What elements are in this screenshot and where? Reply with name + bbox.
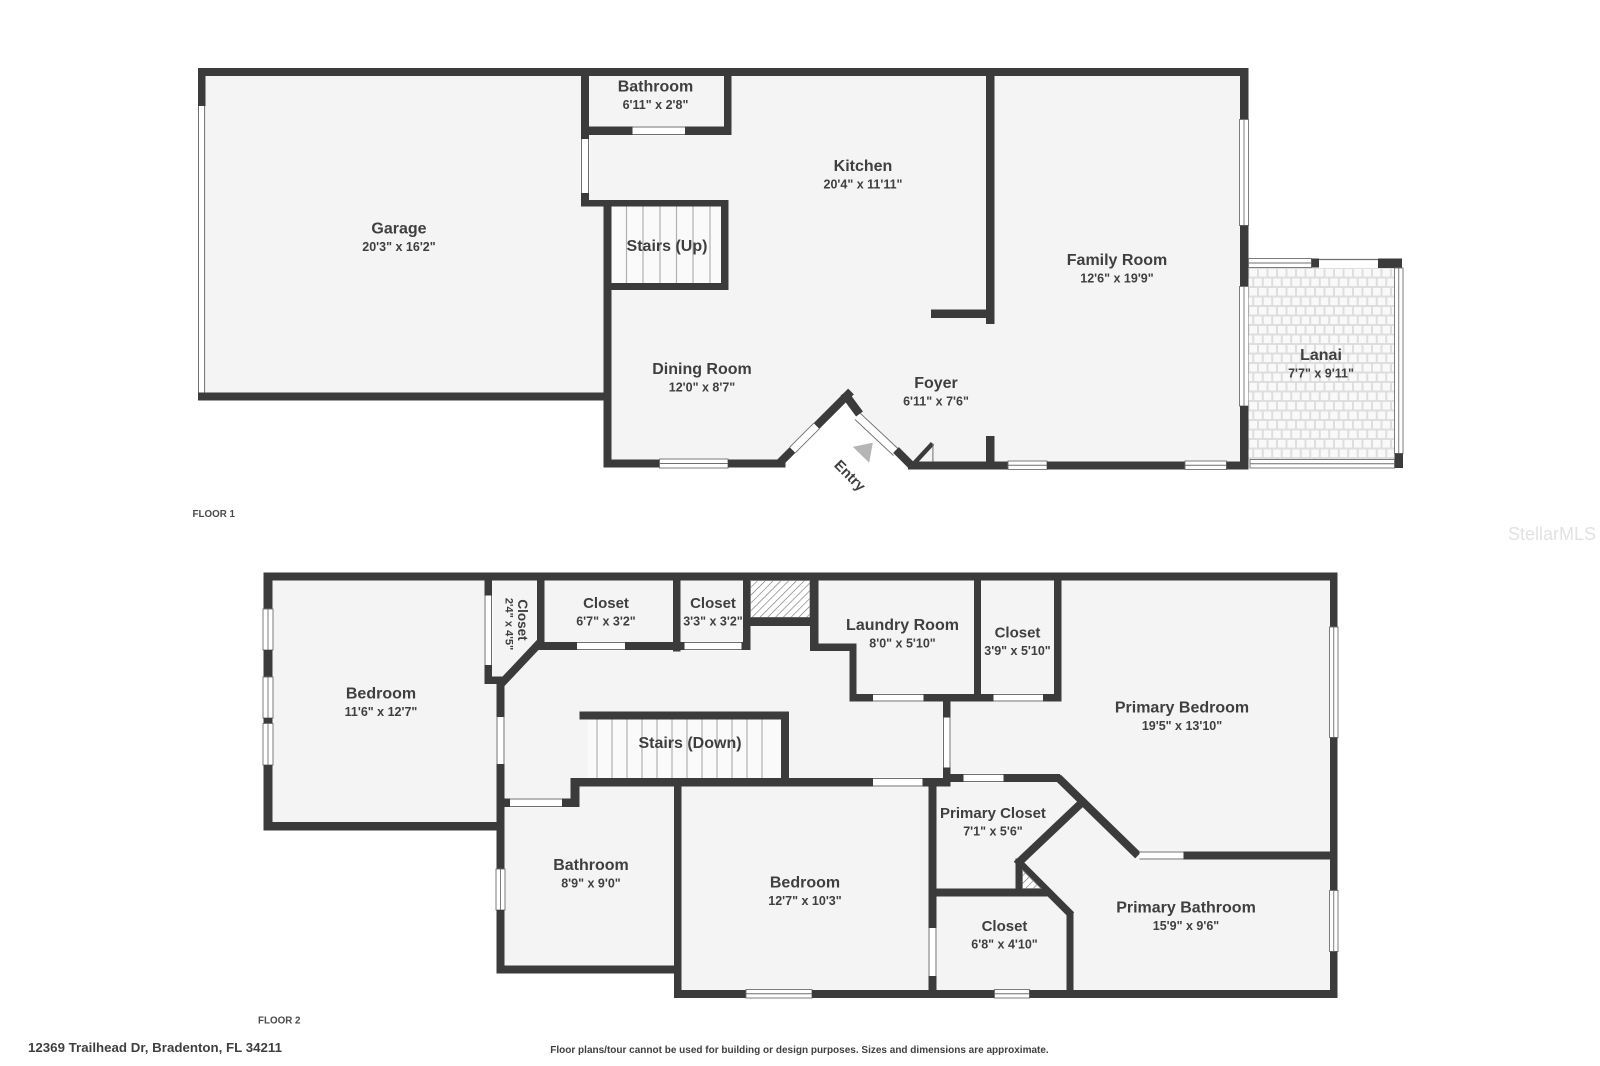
svg-text:20'3" x 16'2": 20'3" x 16'2"	[362, 240, 435, 254]
svg-text:Bathroom: Bathroom	[553, 857, 629, 874]
svg-text:Laundry Room: Laundry Room	[846, 617, 959, 634]
svg-text:Floor plans/tour cannot be use: Floor plans/tour cannot be used for buil…	[550, 1045, 1049, 1056]
svg-text:Stairs (Up): Stairs (Up)	[627, 238, 708, 255]
svg-text:Primary Bathroom: Primary Bathroom	[1116, 900, 1256, 917]
svg-text:7'7" x 9'11": 7'7" x 9'11"	[1288, 367, 1354, 381]
svg-text:Bedroom: Bedroom	[346, 686, 416, 703]
svg-text:15'9" x 9'6": 15'9" x 9'6"	[1153, 919, 1220, 933]
svg-text:Closet: Closet	[690, 595, 736, 612]
svg-text:20'4" x 11'11": 20'4" x 11'11"	[824, 178, 903, 192]
svg-text:StellarMLS: StellarMLS	[1508, 524, 1596, 544]
svg-text:6'11" x 2'8": 6'11" x 2'8"	[623, 98, 689, 112]
svg-text:19'5" x 13'10": 19'5" x 13'10"	[1142, 719, 1222, 733]
svg-text:Primary Closet: Primary Closet	[940, 805, 1046, 822]
svg-text:Stairs (Down): Stairs (Down)	[638, 735, 741, 752]
svg-text:Closet: Closet	[515, 599, 530, 641]
svg-text:Garage: Garage	[371, 221, 426, 238]
svg-text:11'6" x 12'7": 11'6" x 12'7"	[345, 705, 418, 719]
svg-text:Foyer: Foyer	[914, 375, 958, 392]
svg-text:6'8" x 4'10": 6'8" x 4'10"	[971, 938, 1038, 952]
svg-text:FLOOR 1: FLOOR 1	[193, 509, 236, 520]
svg-text:7'1" x 5'6": 7'1" x 5'6"	[963, 825, 1023, 839]
svg-text:12369 Trailhead Dr, Bradenton,: 12369 Trailhead Dr, Bradenton, FL 34211	[28, 1040, 283, 1055]
svg-text:Dining Room: Dining Room	[652, 361, 752, 378]
svg-text:2'4" x 4'5": 2'4" x 4'5"	[503, 598, 515, 650]
svg-text:Bathroom: Bathroom	[618, 79, 694, 96]
svg-text:3'9" x 5'10": 3'9" x 5'10"	[984, 644, 1051, 658]
svg-text:Family Room: Family Room	[1067, 252, 1167, 269]
svg-text:12'7" x 10'3": 12'7" x 10'3"	[768, 894, 841, 908]
svg-text:Entry: Entry	[831, 457, 869, 495]
svg-text:Primary Bedroom: Primary Bedroom	[1115, 700, 1249, 717]
svg-text:6'11" x 7'6": 6'11" x 7'6"	[903, 395, 969, 409]
svg-text:3'3" x 3'2": 3'3" x 3'2"	[683, 615, 743, 629]
svg-text:Bedroom: Bedroom	[770, 875, 840, 892]
svg-text:Closet: Closet	[995, 625, 1041, 642]
svg-text:12'6" x 19'9": 12'6" x 19'9"	[1080, 272, 1153, 286]
svg-text:12'0" x 8'7": 12'0" x 8'7"	[669, 381, 736, 395]
svg-text:8'0" x 5'10": 8'0" x 5'10"	[869, 637, 936, 651]
svg-text:6'7" x 3'2": 6'7" x 3'2"	[576, 615, 636, 629]
svg-text:Closet: Closet	[982, 918, 1028, 935]
svg-text:Kitchen: Kitchen	[834, 158, 893, 175]
svg-text:Lanai: Lanai	[1300, 347, 1342, 364]
svg-text:8'9" x 9'0": 8'9" x 9'0"	[561, 877, 621, 891]
svg-text:FLOOR 2: FLOOR 2	[258, 1016, 301, 1027]
svg-text:Closet: Closet	[583, 595, 629, 612]
